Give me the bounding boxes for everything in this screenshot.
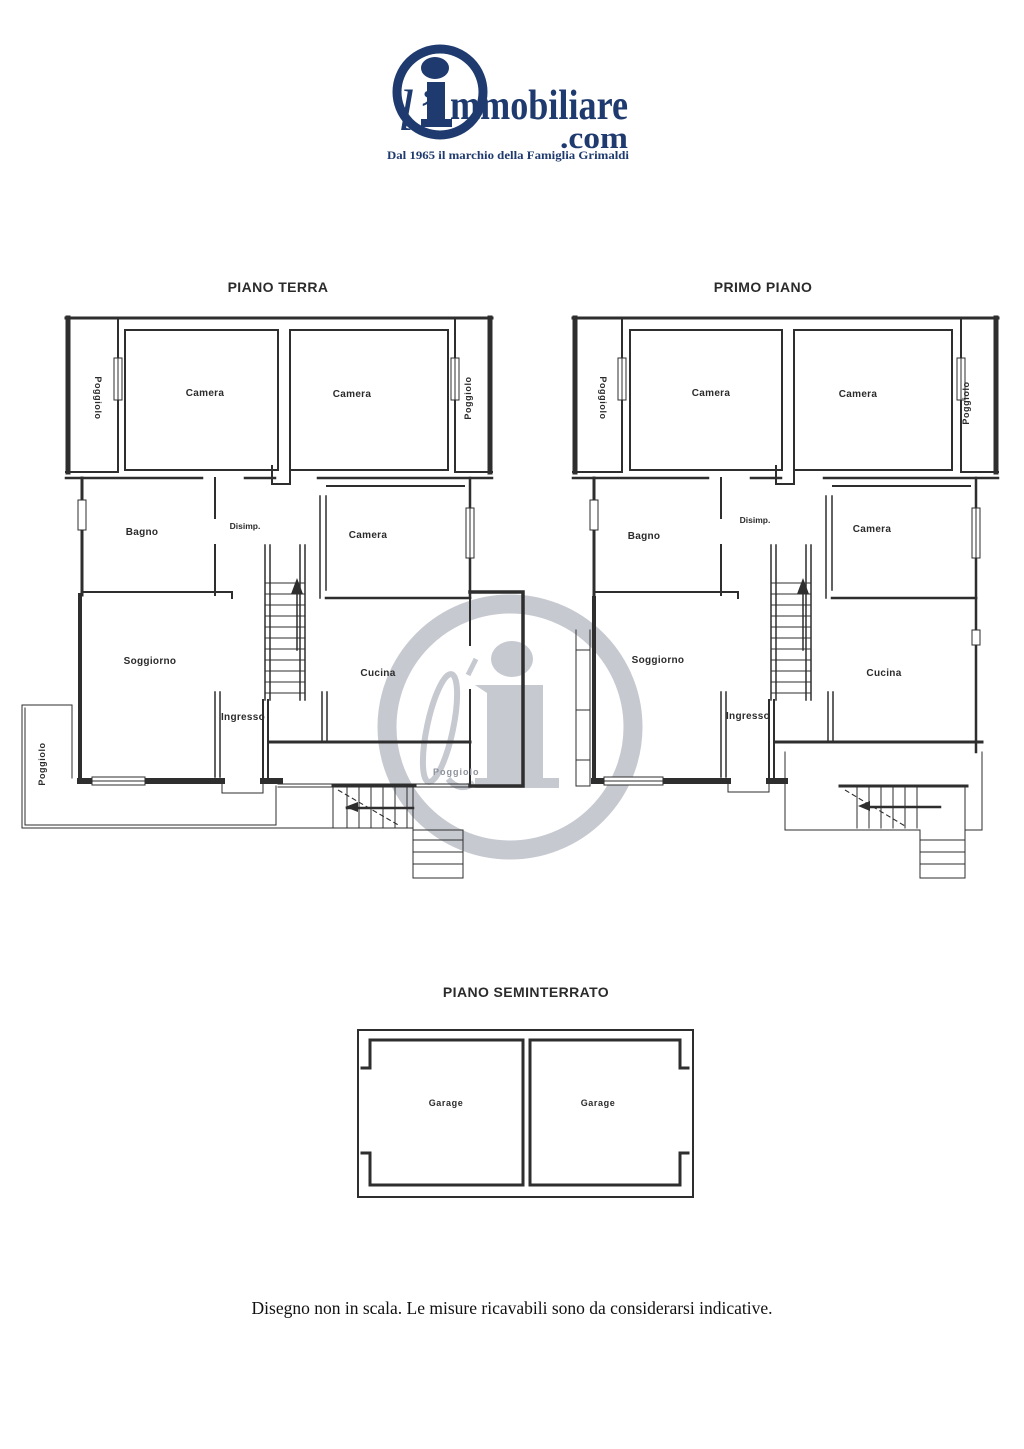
- scale-disclaimer: Disegno non in scala. Le misure ricavabi…: [0, 1298, 1024, 1319]
- room-label-disimpegno: Disimp.: [230, 521, 261, 531]
- room-label-ingresso: Ingresso: [221, 712, 265, 723]
- room-label-cucina: Cucina: [360, 668, 395, 679]
- room-label-camera-nw: Camera: [186, 388, 225, 399]
- room-label-soggiorno: Soggiorno: [124, 656, 177, 667]
- primo-piano-title: PRIMO PIANO: [613, 279, 913, 295]
- seminterrato-title: PIANO SEMINTERRATO: [376, 984, 676, 1000]
- brand-logo: l’ mmobiliare .com Dal 1965 il marchio d…: [382, 42, 638, 164]
- room-label-garage-right: Garage: [581, 1098, 616, 1108]
- room-label-camera-e: Camera: [853, 524, 892, 535]
- room-label-soggiorno: Soggiorno: [632, 655, 685, 666]
- piano-terra-plan: Camera Camera Bagno Disimp. Camera Soggi…: [0, 300, 540, 890]
- room-label-bagno: Bagno: [126, 527, 159, 538]
- floorplan-document: l’ mmobiliare .com Dal 1965 il marchio d…: [0, 0, 1024, 1449]
- room-label-poggiolo-right: Poggiolo: [961, 381, 971, 424]
- room-label-camera-ne: Camera: [333, 389, 372, 400]
- seminterrato-plan: Garage Garage: [340, 1020, 700, 1210]
- seminterrato-walls: [358, 1030, 693, 1197]
- room-label-poggiolo-left: Poggiolo: [598, 376, 608, 419]
- room-label-camera-nw: Camera: [692, 388, 731, 399]
- room-label-garage-left: Garage: [429, 1098, 464, 1108]
- room-label-poggiolo-right: Poggiolo: [463, 376, 473, 419]
- room-label-poggiolo-left: Poggiolo: [93, 376, 103, 419]
- room-label-poggiolo-sw: Poggiolo: [37, 742, 47, 785]
- room-label-camera-e: Camera: [349, 530, 388, 541]
- primo-piano-walls: [573, 318, 998, 878]
- logo-tagline: Dal 1965 il marchio della Famiglia Grima…: [387, 150, 630, 162]
- room-label-ingresso: Ingresso: [726, 711, 770, 722]
- room-label-disimpegno: Disimp.: [740, 515, 771, 525]
- primo-piano-plan: Camera Camera Bagno Disimp. Camera Soggi…: [560, 300, 1024, 890]
- piano-terra-title: PIANO TERRA: [128, 279, 428, 295]
- room-label-camera-ne: Camera: [839, 389, 878, 400]
- room-label-bagno: Bagno: [628, 531, 661, 542]
- room-label-cucina: Cucina: [866, 668, 901, 679]
- room-label-poggiolo-terrace: Poggiolo: [433, 767, 480, 777]
